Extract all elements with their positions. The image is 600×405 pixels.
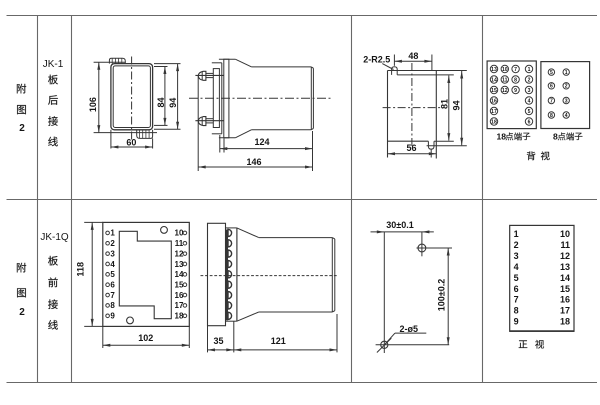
svg-text:18: 18 bbox=[560, 317, 570, 327]
svg-text:1: 1 bbox=[514, 229, 519, 239]
svg-text:4: 4 bbox=[110, 260, 115, 269]
svg-text:16: 16 bbox=[491, 98, 497, 104]
svg-text:1: 1 bbox=[528, 67, 531, 73]
svg-text:5: 5 bbox=[550, 70, 553, 76]
svg-text:11: 11 bbox=[560, 240, 570, 250]
svg-text:1: 1 bbox=[565, 70, 568, 76]
svg-text:2: 2 bbox=[565, 84, 568, 90]
svg-text:100±0.2: 100±0.2 bbox=[436, 279, 446, 311]
svg-text:8: 8 bbox=[550, 113, 553, 119]
svg-text:13: 13 bbox=[491, 67, 497, 73]
svg-text:16: 16 bbox=[560, 295, 570, 305]
svg-text:7: 7 bbox=[550, 98, 553, 104]
svg-text:9: 9 bbox=[514, 88, 517, 94]
svg-text:7: 7 bbox=[514, 67, 517, 73]
svg-text:5: 5 bbox=[528, 109, 531, 115]
svg-text:4: 4 bbox=[528, 98, 531, 104]
svg-text:81: 81 bbox=[440, 99, 450, 109]
svg-text:17: 17 bbox=[560, 306, 570, 316]
svg-text:48: 48 bbox=[408, 51, 418, 61]
svg-text:10: 10 bbox=[175, 229, 184, 238]
svg-text:124: 124 bbox=[254, 137, 269, 147]
svg-text:35: 35 bbox=[213, 336, 223, 346]
svg-text:14: 14 bbox=[560, 273, 570, 283]
svg-text:15: 15 bbox=[175, 281, 184, 290]
svg-text:4: 4 bbox=[514, 262, 519, 272]
svg-text:9: 9 bbox=[110, 312, 115, 321]
svg-text:13: 13 bbox=[175, 260, 184, 269]
svg-text:10: 10 bbox=[560, 229, 570, 239]
svg-text:8: 8 bbox=[514, 77, 517, 83]
svg-text:JK-1: JK-1 bbox=[43, 59, 64, 70]
svg-text:121: 121 bbox=[271, 336, 286, 346]
svg-text:6: 6 bbox=[514, 284, 519, 294]
svg-text:60: 60 bbox=[126, 137, 136, 147]
svg-text:7: 7 bbox=[514, 295, 519, 305]
svg-text:6: 6 bbox=[528, 119, 531, 125]
svg-text:84: 84 bbox=[156, 97, 166, 107]
svg-text:146: 146 bbox=[246, 157, 261, 167]
svg-text:2: 2 bbox=[19, 123, 25, 134]
svg-text:94: 94 bbox=[168, 98, 178, 108]
svg-text:102: 102 bbox=[138, 333, 153, 343]
svg-text:12: 12 bbox=[175, 249, 184, 258]
svg-text:2: 2 bbox=[110, 239, 115, 248]
svg-text:8: 8 bbox=[514, 306, 519, 316]
svg-text:1: 1 bbox=[110, 229, 115, 238]
svg-text:8: 8 bbox=[110, 301, 115, 310]
svg-text:7: 7 bbox=[110, 291, 115, 300]
svg-text:6: 6 bbox=[550, 84, 553, 90]
svg-text:18: 18 bbox=[175, 312, 184, 321]
svg-text:30±0.1: 30±0.1 bbox=[386, 220, 413, 230]
svg-text:94: 94 bbox=[452, 100, 462, 110]
svg-text:10: 10 bbox=[502, 67, 508, 73]
svg-text:14: 14 bbox=[175, 270, 184, 279]
svg-text:16: 16 bbox=[175, 291, 184, 300]
svg-text:14: 14 bbox=[491, 77, 497, 83]
svg-text:12: 12 bbox=[502, 88, 508, 94]
svg-text:18: 18 bbox=[491, 119, 497, 125]
svg-text:3: 3 bbox=[565, 98, 568, 104]
svg-text:5: 5 bbox=[110, 270, 115, 279]
svg-text:56: 56 bbox=[406, 143, 416, 153]
svg-text:9: 9 bbox=[514, 317, 519, 327]
svg-text:6: 6 bbox=[110, 281, 115, 290]
svg-text:2: 2 bbox=[514, 240, 519, 250]
svg-text:2: 2 bbox=[19, 307, 25, 318]
svg-text:12: 12 bbox=[560, 251, 570, 261]
svg-text:2-ø5: 2-ø5 bbox=[400, 324, 419, 334]
svg-text:4: 4 bbox=[565, 113, 568, 119]
svg-text:13: 13 bbox=[560, 262, 570, 272]
svg-text:17: 17 bbox=[175, 301, 184, 310]
svg-text:15: 15 bbox=[560, 284, 570, 294]
svg-text:2: 2 bbox=[528, 77, 531, 83]
svg-text:8: 8 bbox=[553, 131, 558, 141]
svg-text:18: 18 bbox=[497, 131, 507, 141]
svg-text:11: 11 bbox=[502, 77, 508, 83]
svg-text:3: 3 bbox=[528, 88, 531, 94]
svg-text:11: 11 bbox=[175, 239, 184, 248]
svg-text:JK-1Q: JK-1Q bbox=[40, 232, 69, 243]
svg-text:3: 3 bbox=[514, 251, 519, 261]
svg-text:118: 118 bbox=[75, 262, 85, 277]
svg-text:5: 5 bbox=[514, 273, 519, 283]
svg-text:3: 3 bbox=[110, 249, 115, 258]
svg-text:15: 15 bbox=[491, 88, 497, 94]
svg-text:106: 106 bbox=[88, 97, 98, 112]
svg-text:17: 17 bbox=[491, 109, 497, 115]
svg-text:2-R2.5: 2-R2.5 bbox=[363, 54, 390, 64]
